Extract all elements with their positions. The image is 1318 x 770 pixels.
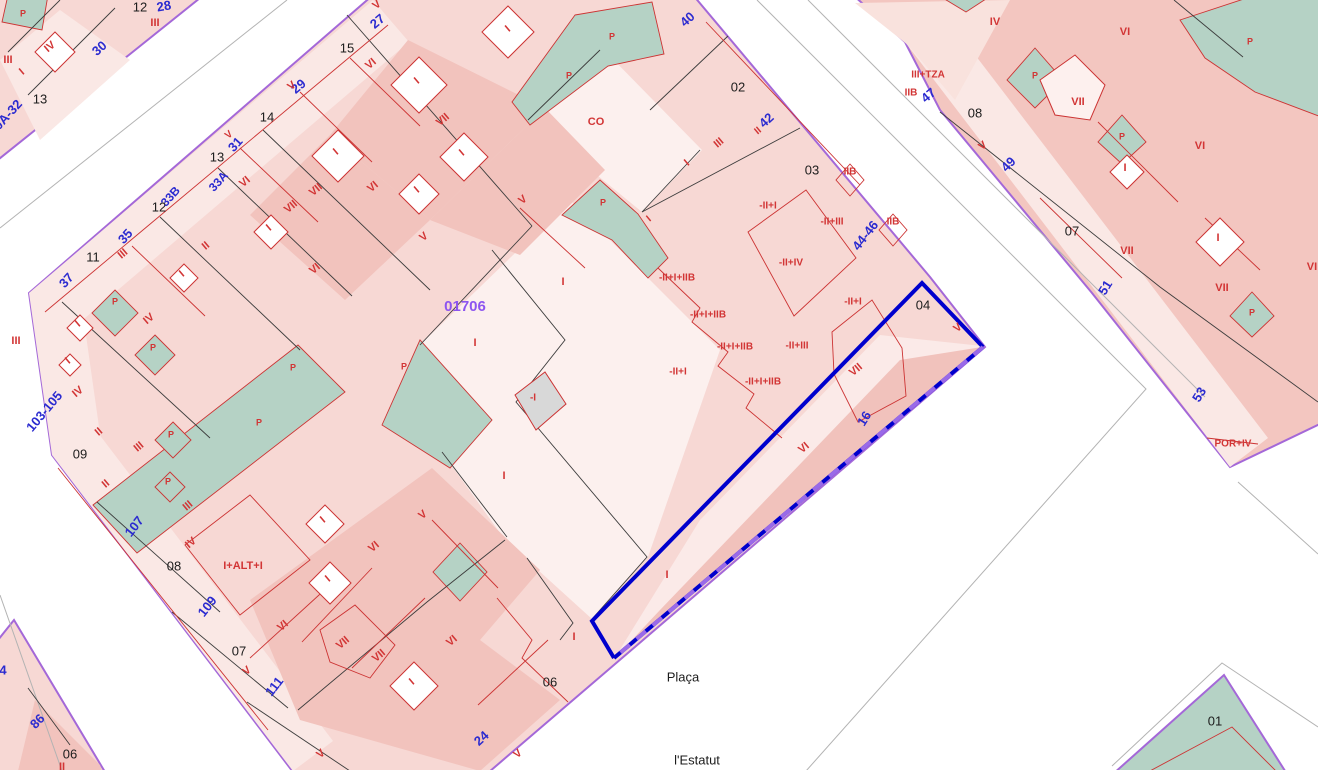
- floors-code: I+ALT+I: [223, 560, 263, 572]
- floors-code: IV: [990, 16, 1001, 28]
- patio-label: P: [1247, 36, 1253, 46]
- cadastral-map-viewer: 151413121109080706020304131208070106Plaç…: [0, 0, 1318, 770]
- street-number: 28: [155, 0, 172, 15]
- street-number: 4: [0, 662, 7, 677]
- patio-label: P: [566, 70, 572, 80]
- patio-label: P: [256, 417, 262, 427]
- street-name: l'Estatut: [674, 752, 720, 767]
- parcel-number: 06: [543, 674, 557, 689]
- patio-label: P: [20, 8, 26, 18]
- parcel-number: 06: [63, 746, 77, 761]
- floors-code: -II+I: [669, 367, 687, 378]
- floors-code: I: [473, 337, 476, 349]
- patio-label: P: [165, 476, 171, 486]
- patio-label: P: [401, 361, 407, 371]
- patio-label: P: [600, 197, 606, 207]
- parcel-number: 15: [340, 40, 354, 55]
- parcel-number: 01: [1208, 713, 1222, 728]
- floors-code: -II+I: [759, 201, 777, 212]
- floors-code: I: [572, 631, 575, 643]
- cadastral-map[interactable]: 151413121109080706020304131208070106Plaç…: [0, 0, 1318, 770]
- floors-code: VI: [1120, 26, 1130, 38]
- parcel-number: 11: [86, 249, 100, 264]
- floors-code: III+TZA: [911, 70, 945, 81]
- parcel-number: 04: [916, 297, 930, 312]
- floors-code: VII: [1071, 96, 1084, 108]
- floors-code: I: [665, 569, 668, 581]
- floors-code: VI: [1195, 140, 1205, 152]
- floors-code: VII: [1215, 282, 1228, 294]
- floors-code: -II+III: [820, 217, 843, 228]
- patio-label: P: [168, 429, 174, 439]
- floors-code: I: [561, 276, 564, 288]
- floors-code: III: [150, 17, 159, 29]
- floors-code: II: [59, 761, 65, 770]
- floors-code: -I: [530, 393, 536, 404]
- patio-label: P: [1032, 70, 1038, 80]
- floors-code: -II+IV: [779, 258, 804, 269]
- parcel-number: 03: [805, 162, 819, 177]
- floors-code: IIB: [887, 217, 900, 228]
- floors-code: -II+I: [844, 297, 862, 308]
- parcel-number: 07: [1065, 223, 1079, 238]
- parcel-number: 09: [73, 446, 87, 461]
- floors-code: -II+I+IIB: [717, 342, 753, 353]
- patio-label: P: [1119, 131, 1125, 141]
- floors-code: III: [3, 54, 12, 66]
- patio-label: P: [112, 296, 118, 306]
- floors-code: I: [1123, 162, 1126, 174]
- floors-code: -II+I+IIB: [745, 377, 781, 388]
- patio-label: P: [150, 342, 156, 352]
- floors-code: POR+IV: [1215, 439, 1252, 450]
- parcel-number: 13: [210, 149, 224, 164]
- floors-code: -II+I+IIB: [690, 310, 726, 321]
- parcel-number: 13: [33, 91, 47, 106]
- patio-label: P: [1249, 307, 1255, 317]
- floors-code: -II+III: [785, 341, 808, 352]
- patio-label: P: [609, 31, 615, 41]
- parcel-number: 02: [731, 79, 745, 94]
- parcel-number: 08: [968, 105, 982, 120]
- floors-code: I: [1216, 232, 1219, 244]
- parcel-number: 07: [232, 643, 246, 658]
- floors-code: I: [502, 470, 505, 482]
- floors-code: VII: [1120, 245, 1133, 257]
- floors-code: VI: [1307, 261, 1317, 273]
- parcel-number: 12: [133, 0, 147, 14]
- floors-code: CO: [588, 116, 605, 128]
- floors-code: IIB: [905, 88, 918, 99]
- parcel-number: 14: [260, 109, 274, 124]
- floors-code: III: [11, 335, 20, 347]
- parcel-number: 08: [167, 558, 181, 573]
- floors-code: IIB: [844, 167, 857, 178]
- block-id: 01706: [444, 298, 486, 315]
- floors-code: -II+I+IIB: [659, 273, 695, 284]
- patio-label: P: [290, 362, 296, 372]
- street-name: Plaça: [667, 669, 700, 684]
